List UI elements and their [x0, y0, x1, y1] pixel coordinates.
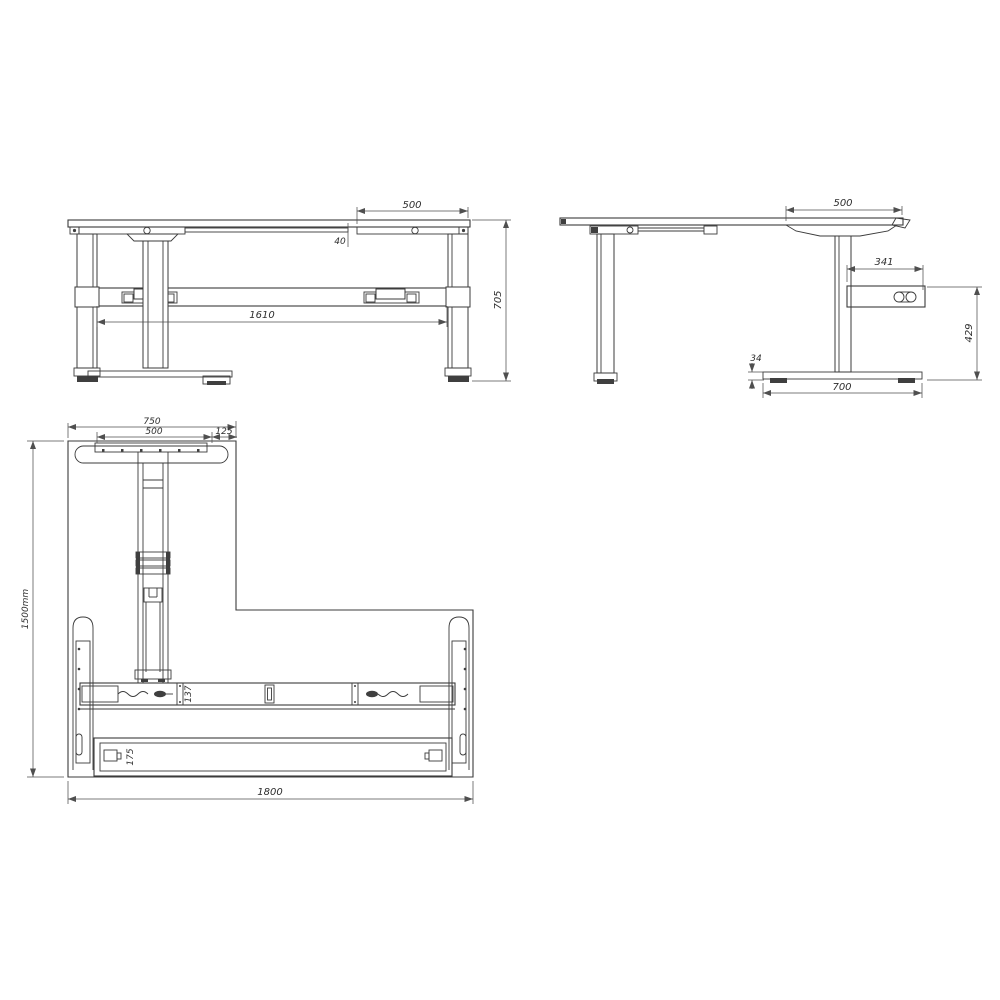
crossbar-front: [77, 288, 468, 306]
dim-label-front-500: 500: [402, 200, 421, 211]
return-foot-plan: [75, 443, 228, 463]
dim-label-plan-125: 125: [215, 427, 232, 437]
dimension-side-429: 429: [927, 287, 982, 380]
dim-label-front-1610: 1610: [249, 310, 274, 321]
dim-label-side-341: 341: [874, 257, 893, 268]
column-plan: [135, 452, 171, 683]
dim-label-plan-1500mm: 1500mm: [21, 589, 31, 630]
rail-connector: [704, 226, 717, 234]
foot-side: [763, 372, 922, 379]
middle-leg-front: [88, 241, 232, 385]
blueprint-canvas: 500 40 1610 705: [0, 0, 1000, 1000]
dimension-side-341: 341: [847, 257, 923, 290]
dimension-side-700: 700: [763, 382, 922, 398]
desktop-outline-plan: [68, 441, 473, 777]
dim-label-side-429: 429: [964, 323, 975, 342]
dim-label-front-705: 705: [493, 290, 504, 309]
front-view: 500 40 1610 705: [68, 200, 511, 385]
handle-icon: [894, 292, 916, 302]
left-leg-front: [74, 234, 100, 382]
desktop-side: [560, 218, 910, 236]
dimension-plan-1500: 1500mm: [21, 441, 64, 777]
motor-handle-right: [364, 289, 419, 303]
crossbar-plan: [80, 683, 455, 709]
control-box: [847, 286, 925, 307]
top-bracket-plate: [786, 225, 897, 236]
bracket-detail: [144, 588, 162, 602]
cable-right: [378, 692, 408, 697]
leg-mount-bracket: [127, 234, 178, 241]
dim-label-front-40: 40: [334, 237, 346, 247]
cable-left: [118, 692, 148, 697]
dim-label-side-500: 500: [833, 198, 852, 209]
desktop-front: [68, 220, 470, 241]
dimension-plan-125: 125: [212, 427, 237, 437]
right-leg-front: [445, 234, 471, 382]
technical-drawing: 500 40 1610 705: [0, 0, 1000, 1000]
cable-clamp: [136, 552, 170, 574]
dimension-front-705: 705: [472, 220, 511, 381]
dimension-side-34: 34: [748, 354, 764, 389]
side-view: 500 341 429 34 700: [560, 198, 982, 398]
dim-label-side-34: 34: [750, 354, 762, 364]
motor-box-right: [420, 686, 453, 702]
column-base-plate: [135, 670, 171, 679]
left-rail-plan: [73, 617, 93, 770]
dim-label-side-700: 700: [832, 382, 851, 393]
dimension-plan-175: 175: [126, 748, 136, 765]
dimension-plan-1800: 1800: [68, 781, 473, 804]
beam-plan: [94, 738, 452, 776]
dim-label-plan-500: 500: [145, 427, 162, 437]
dimension-plan-137: 137: [184, 685, 194, 702]
motor-box-left: [82, 686, 118, 702]
dim-label-plan-175: 175: [126, 748, 136, 765]
dim-label-plan-137: 137: [184, 685, 194, 702]
plan-view: 750 500 125 1500mm 137 175 1800: [21, 417, 473, 804]
right-leg-side: [763, 236, 922, 383]
dim-label-plan-1800: 1800: [257, 787, 282, 798]
dim-label-plan-750: 750: [143, 417, 160, 427]
left-leg-side: [594, 234, 617, 384]
